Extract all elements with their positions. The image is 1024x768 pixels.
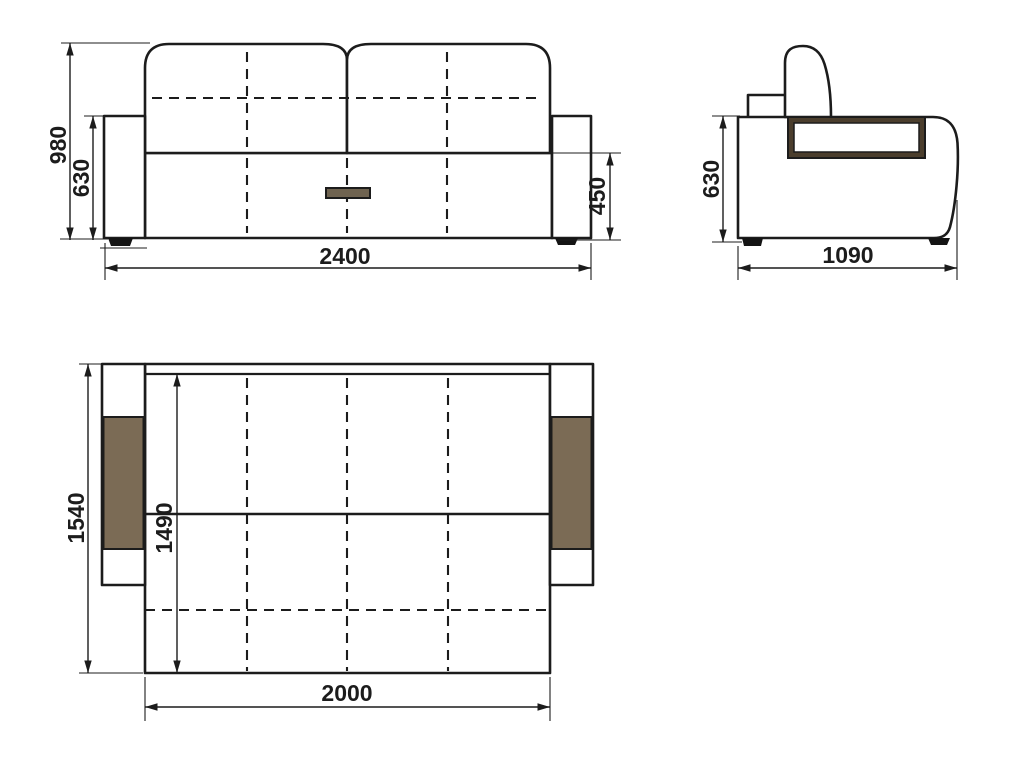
- front-foot-left: [108, 238, 133, 246]
- side-foot-right: [928, 238, 950, 245]
- sofa-dimension-drawing: 980 630 450 2400: [0, 0, 1024, 768]
- side-back-frame-step: [748, 95, 785, 117]
- dim-label-front-overall-width: 2400: [319, 243, 370, 269]
- side-view: 630 1090: [698, 46, 958, 280]
- dim-label-top-sleeping-width: 2000: [321, 680, 372, 706]
- dim-front-armrest-height: 630: [68, 116, 107, 240]
- front-view: 980 630 450 2400: [45, 43, 621, 280]
- front-armrest-left: [104, 116, 145, 238]
- dim-label-front-overall-height: 980: [45, 126, 71, 164]
- top-view-unfolded: 1540 1490 2000: [63, 364, 593, 721]
- drawing-canvas: 980 630 450 2400: [0, 0, 1024, 768]
- dim-label-front-armrest-height: 630: [68, 159, 94, 197]
- side-foot-left: [742, 238, 763, 246]
- top-armrest-right-panel: [552, 417, 592, 549]
- dim-front-overall-width: 2400: [105, 243, 591, 280]
- dim-top-sleeping-width: 2000: [145, 677, 550, 721]
- dim-label-top-overall-depth: 1540: [63, 492, 89, 543]
- front-pull-handle: [326, 188, 370, 198]
- dim-label-top-sleeping-length: 1490: [151, 502, 177, 553]
- side-back-cushion: [785, 46, 831, 117]
- dim-label-side-height: 630: [698, 160, 724, 198]
- dim-label-front-seat-height: 450: [584, 177, 610, 215]
- dim-side-height: 630: [698, 116, 742, 242]
- dim-label-side-depth: 1090: [822, 242, 873, 268]
- front-foot-right: [555, 238, 578, 245]
- side-panel-inset: [794, 123, 919, 152]
- top-armrest-left-panel: [104, 417, 144, 549]
